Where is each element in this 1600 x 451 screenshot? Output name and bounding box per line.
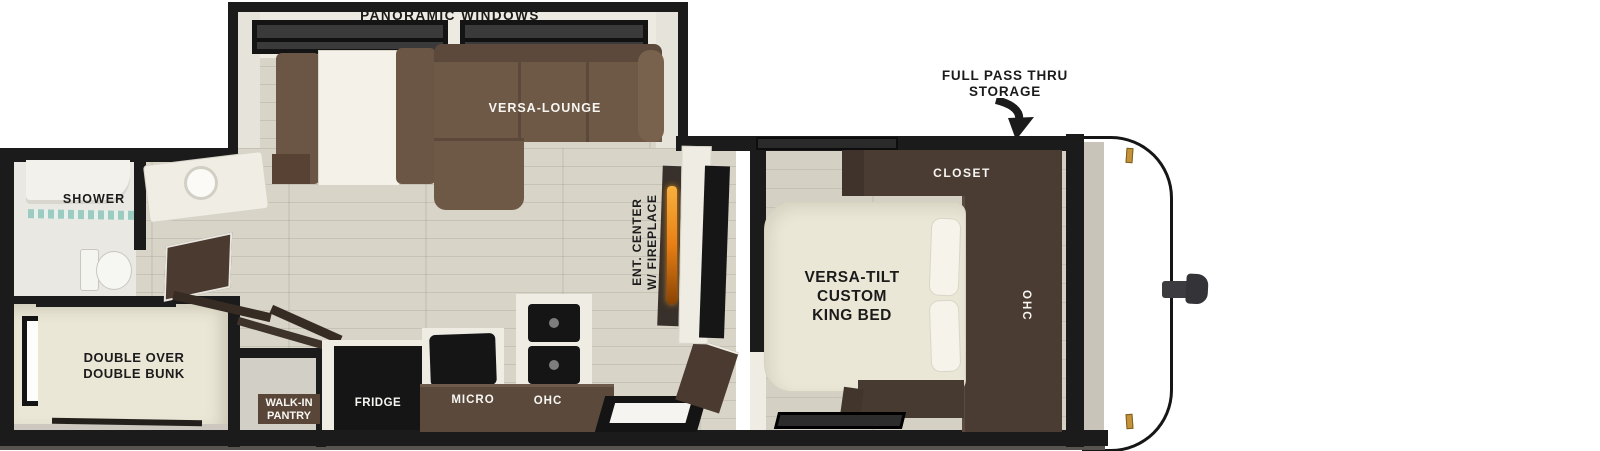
bed-label-line3: KING BED [772, 306, 932, 325]
sink-drain [549, 318, 559, 328]
marker-light-top [1125, 148, 1133, 163]
bunk-window [22, 316, 38, 406]
marker-light-bottom [1125, 414, 1133, 429]
hitch-coupler [1185, 273, 1209, 304]
ground-shadow [0, 446, 1105, 450]
pillow-top [929, 218, 962, 297]
bunk-label-line1: DOUBLE OVER [48, 350, 220, 366]
shower-glass-door [28, 209, 134, 220]
pantry-label-line1: WALK-IN [258, 397, 320, 410]
kitchen-ohc-label: OHC [520, 395, 576, 407]
window-pane-divider [465, 38, 643, 42]
storage-label-line1: FULL PASS THRU [930, 68, 1080, 84]
bunk-top-edge [36, 302, 176, 307]
bed-label-line2: CUSTOM [772, 287, 932, 306]
hall-cabinet [272, 154, 310, 184]
ent-center-label: ENT. CENTER W/ FIREPLACE [630, 182, 666, 302]
fridge [334, 346, 422, 430]
micro-label: MICRO [440, 394, 506, 406]
walk-in-pantry-badge: WALK-IN PANTRY [258, 394, 320, 424]
wall-bottom [0, 430, 1108, 446]
versa-lounge-arm-right [638, 50, 664, 142]
fridge-label: FRIDGE [336, 397, 420, 409]
toilet-bowl [96, 251, 132, 290]
sink-drain [549, 360, 559, 370]
versa-lounge-chaise [434, 138, 524, 210]
entry-step-tread [609, 403, 691, 423]
full-pass-thru-storage-label: FULL PASS THRU STORAGE [930, 68, 1080, 100]
window-pane-divider [257, 38, 443, 42]
bedroom-window-bottom [774, 412, 906, 429]
pantry-label-line2: PANTRY [258, 410, 320, 423]
shower-label: SHOWER [48, 192, 140, 206]
kitchen-ohc-cabinet [420, 384, 614, 432]
lounge-bed-right-arm [396, 48, 436, 184]
cooktop [429, 333, 497, 387]
sink-basin-lower [528, 346, 580, 384]
ent-label-line2: W/ FIREPLACE [645, 182, 660, 302]
pillow-bottom [929, 299, 961, 372]
bedroom-window-top [756, 137, 898, 150]
ent-label-line1: ENT. CENTER [630, 182, 645, 302]
versa-lounge-label: VERSA-LOUNGE [470, 101, 620, 115]
closet-label: CLOSET [912, 166, 1012, 180]
double-bunk-label: DOUBLE OVER DOUBLE BUNK [48, 350, 220, 382]
panoramic-windows-label: PANORAMIC WINDOWS [300, 8, 600, 23]
vanity-sink [184, 166, 218, 200]
wall-pantry-top [228, 348, 326, 358]
sink-basin-upper [528, 304, 580, 342]
bunk-label-line2: DOUBLE BUNK [48, 366, 220, 382]
fireplace-flame [667, 186, 677, 304]
wall-front [1066, 134, 1084, 447]
pass-thru-interior [1084, 142, 1104, 440]
floorplan-canvas: PANORAMIC WINDOWS VERSA-LOUNGE FULL PASS… [0, 0, 1600, 451]
storage-arrow-icon [978, 98, 1038, 142]
bed-label-line1: VERSA-TILT [772, 268, 932, 287]
king-bed-label: VERSA-TILT CUSTOM KING BED [772, 268, 932, 325]
lounge-bed-mattress [318, 50, 400, 186]
bedroom-ohc-label: OHC [1008, 278, 1032, 334]
